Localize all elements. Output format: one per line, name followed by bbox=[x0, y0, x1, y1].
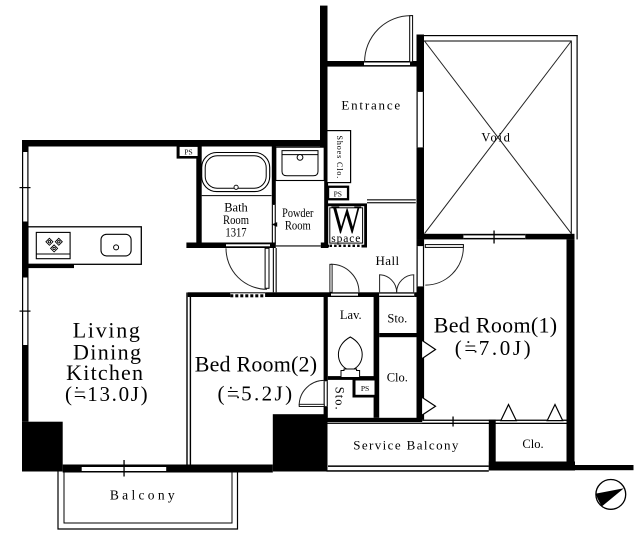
svg-text:PS: PS bbox=[361, 384, 369, 393]
svg-text:Void: Void bbox=[481, 131, 511, 145]
svg-text:Sto.: Sto. bbox=[333, 387, 347, 411]
svg-text:1317: 1317 bbox=[225, 226, 246, 240]
svg-text:Hall: Hall bbox=[376, 253, 400, 268]
svg-text:Clo.: Clo. bbox=[522, 437, 543, 451]
svg-text:Balcony: Balcony bbox=[110, 488, 178, 503]
svg-text:space: space bbox=[331, 233, 361, 245]
svg-text:(=5.2J): (=5.2J) bbox=[217, 382, 294, 406]
svg-text:Entrance: Entrance bbox=[341, 98, 402, 113]
svg-text:(=13.0J): (=13.0J) bbox=[65, 382, 149, 406]
svg-text:Bed Room(2): Bed Room(2) bbox=[195, 352, 318, 377]
svg-text:Room: Room bbox=[285, 219, 311, 233]
svg-text:PS: PS bbox=[334, 190, 342, 199]
svg-text:Clo.: Clo. bbox=[387, 371, 408, 385]
svg-text:Sto.: Sto. bbox=[387, 311, 407, 325]
svg-text:Service Balcony: Service Balcony bbox=[353, 437, 460, 452]
svg-text:(=7.0J): (=7.0J) bbox=[455, 336, 533, 360]
svg-text:Lav.: Lav. bbox=[340, 308, 362, 322]
svg-text:Shoes Clo.: Shoes Clo. bbox=[335, 136, 344, 180]
svg-text:PS: PS bbox=[184, 147, 192, 156]
svg-text:Bed Room(1): Bed Room(1) bbox=[434, 313, 558, 338]
